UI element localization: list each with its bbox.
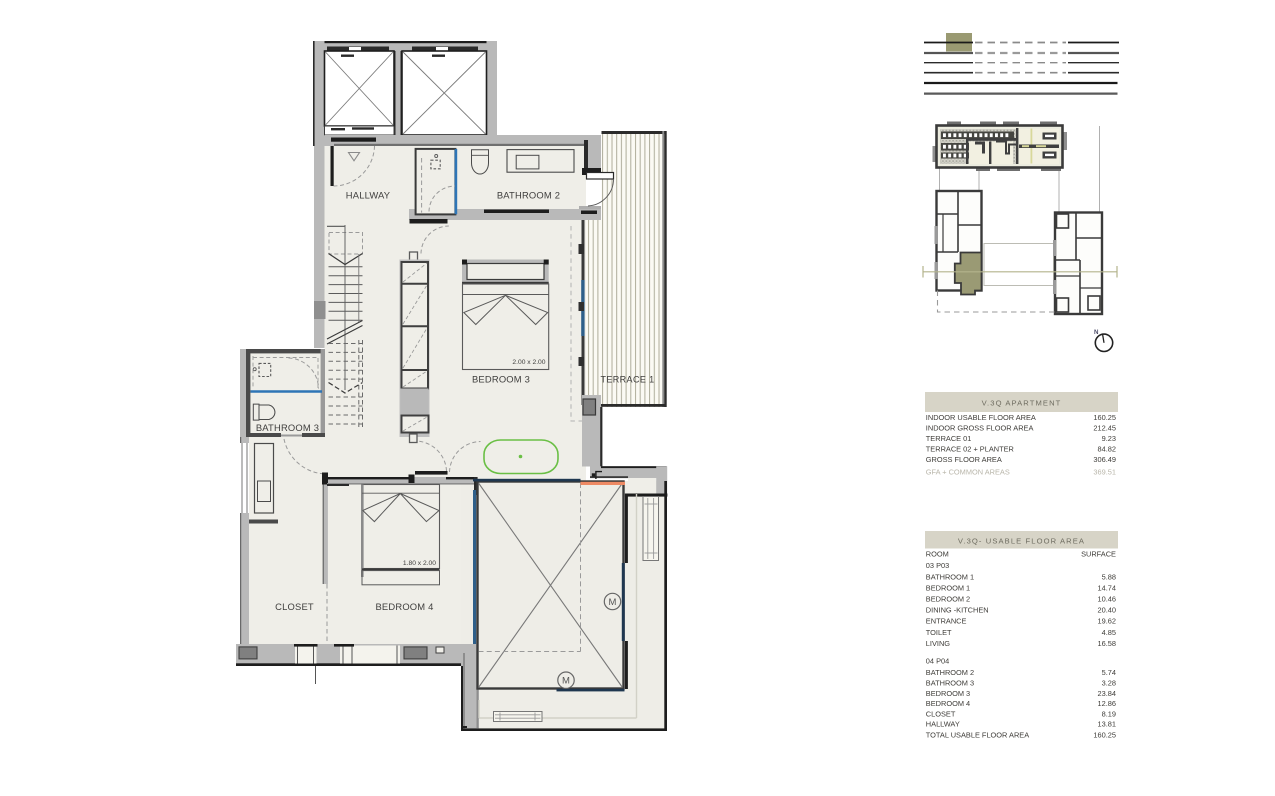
svg-text:BEDROOM 4: BEDROOM 4 xyxy=(375,601,433,612)
svg-text:N: N xyxy=(1094,329,1099,336)
svg-text:CLOSET: CLOSET xyxy=(275,601,314,612)
svg-text:5.88: 5.88 xyxy=(1102,572,1116,581)
svg-text:TOTAL USABLE FLOOR AREA: TOTAL USABLE FLOOR AREA xyxy=(926,731,1029,740)
svg-text:16.58: 16.58 xyxy=(1098,639,1117,648)
svg-text:12.86: 12.86 xyxy=(1098,699,1117,708)
svg-text:8.19: 8.19 xyxy=(1102,709,1116,718)
svg-text:BEDROOM 4: BEDROOM 4 xyxy=(926,699,970,708)
svg-text:BEDROOM 1: BEDROOM 1 xyxy=(926,584,970,593)
svg-text:TOILET: TOILET xyxy=(926,628,952,637)
svg-text:ENTRANCE: ENTRANCE xyxy=(926,617,967,626)
svg-text:BATHROOM 3: BATHROOM 3 xyxy=(256,422,319,433)
svg-text:LIVING: LIVING xyxy=(926,639,950,648)
svg-text:SURFACE: SURFACE xyxy=(1081,550,1116,559)
svg-text:ROOM: ROOM xyxy=(926,550,949,559)
svg-text:BATHROOM 1: BATHROOM 1 xyxy=(926,572,974,581)
svg-text:BATHROOM 2: BATHROOM 2 xyxy=(497,190,560,201)
svg-text:TERRACE 1: TERRACE 1 xyxy=(600,375,654,385)
svg-text:2.00 x 2.00: 2.00 x 2.00 xyxy=(512,359,545,366)
svg-text:20.40: 20.40 xyxy=(1098,606,1117,615)
svg-text:TERRACE 01: TERRACE 01 xyxy=(926,434,972,443)
svg-text:10.46: 10.46 xyxy=(1098,595,1117,604)
svg-text:HALLWAY: HALLWAY xyxy=(926,720,960,729)
svg-text:3.28: 3.28 xyxy=(1102,679,1116,688)
svg-text:9.23: 9.23 xyxy=(1102,434,1116,443)
svg-text:GROSS FLOOR AREA: GROSS FLOOR AREA xyxy=(926,455,1002,464)
svg-text:INDOOR GROSS FLOOR AREA: INDOOR GROSS FLOOR AREA xyxy=(926,424,1034,433)
svg-text:V.3Q APARTMENT: V.3Q APARTMENT xyxy=(982,399,1062,408)
svg-text:DINING -KITCHEN: DINING -KITCHEN xyxy=(926,606,989,615)
svg-text:M: M xyxy=(609,597,617,608)
svg-text:M: M xyxy=(562,676,570,687)
svg-text:306.49: 306.49 xyxy=(1093,455,1116,464)
svg-text:GFA + COMMON AREAS: GFA + COMMON AREAS xyxy=(926,468,1010,477)
svg-text:160.25: 160.25 xyxy=(1093,413,1116,422)
svg-text:TERRACE 02 + PLANTER: TERRACE 02 + PLANTER xyxy=(926,445,1014,454)
svg-text:14.74: 14.74 xyxy=(1098,584,1117,593)
svg-text:5.74: 5.74 xyxy=(1102,668,1116,677)
svg-text:212.45: 212.45 xyxy=(1093,424,1116,433)
svg-text:CLOSET: CLOSET xyxy=(926,709,956,718)
svg-text:369.51: 369.51 xyxy=(1093,468,1116,477)
svg-text:04 P04: 04 P04 xyxy=(926,657,949,666)
svg-text:BEDROOM 3: BEDROOM 3 xyxy=(926,689,970,698)
svg-text:BEDROOM 3: BEDROOM 3 xyxy=(472,374,530,385)
svg-text:BATHROOM 3: BATHROOM 3 xyxy=(926,679,974,688)
svg-text:1.80 x 2.00: 1.80 x 2.00 xyxy=(403,560,436,567)
svg-text:V.3Q- USABLE FLOOR AREA: V.3Q- USABLE FLOOR AREA xyxy=(958,537,1085,546)
svg-text:4.85: 4.85 xyxy=(1102,628,1116,637)
svg-text:84.82: 84.82 xyxy=(1098,445,1117,454)
svg-text:HALLWAY: HALLWAY xyxy=(346,190,391,201)
svg-text:BATHROOM 2: BATHROOM 2 xyxy=(926,668,974,677)
svg-text:160.25: 160.25 xyxy=(1093,731,1116,740)
svg-text:23.84: 23.84 xyxy=(1098,689,1117,698)
svg-text:13.81: 13.81 xyxy=(1098,720,1117,729)
svg-text:BEDROOM 2: BEDROOM 2 xyxy=(926,595,970,604)
svg-text:INDOOR USABLE FLOOR AREA: INDOOR USABLE FLOOR AREA xyxy=(926,413,1036,422)
svg-text:03 P03: 03 P03 xyxy=(926,561,949,570)
svg-text:19.62: 19.62 xyxy=(1098,617,1117,626)
